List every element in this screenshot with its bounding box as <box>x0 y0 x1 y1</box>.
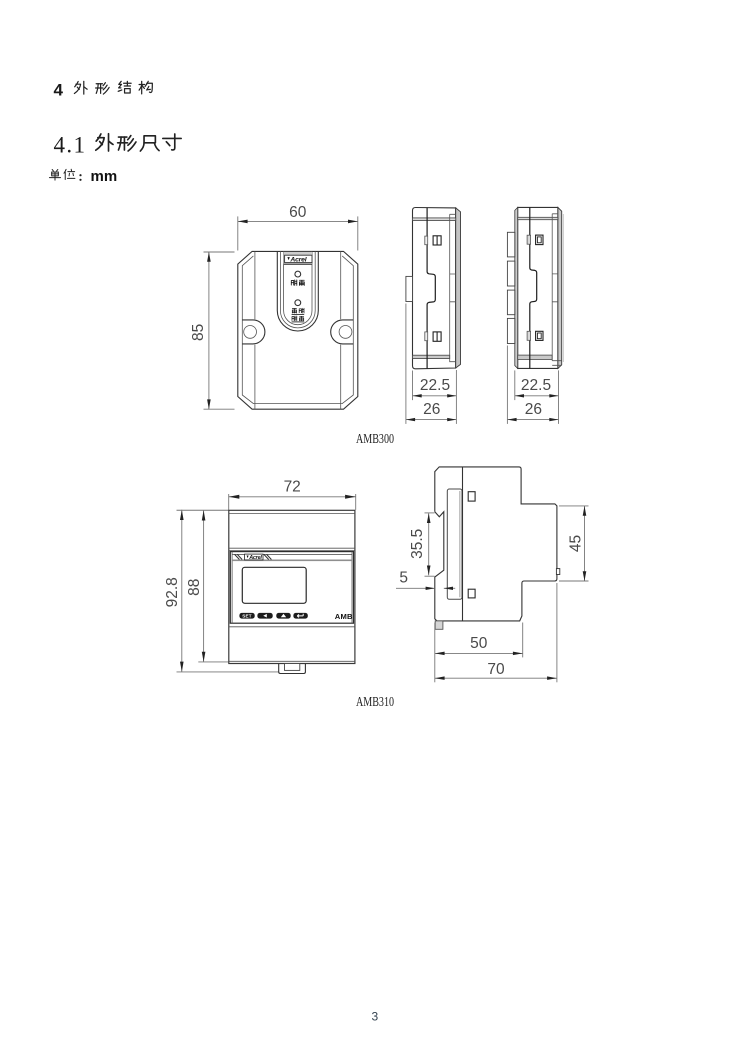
svg-text:26: 26 <box>423 401 440 418</box>
svg-text:4.1: 4.1 <box>54 132 87 157</box>
svg-text:26: 26 <box>525 401 542 418</box>
svg-text:60: 60 <box>289 204 307 221</box>
svg-text:AMB310: AMB310 <box>356 693 394 709</box>
svg-text:4: 4 <box>54 81 64 100</box>
svg-text:5: 5 <box>399 570 408 587</box>
svg-text:22.5: 22.5 <box>420 377 450 394</box>
svg-text:35.5: 35.5 <box>409 529 426 559</box>
svg-text:mm: mm <box>91 168 118 185</box>
svg-text:72: 72 <box>284 479 301 496</box>
svg-text:AMB300: AMB300 <box>356 431 394 447</box>
svg-text:50: 50 <box>470 635 488 652</box>
svg-text:22.5: 22.5 <box>521 377 551 394</box>
svg-text:AMB: AMB <box>335 612 353 621</box>
svg-text:3: 3 <box>372 1010 379 1024</box>
svg-text:45: 45 <box>567 535 584 552</box>
svg-text:Acrel: Acrel <box>248 555 262 561</box>
svg-text:92.8: 92.8 <box>164 577 181 607</box>
svg-text:SET: SET <box>242 614 252 619</box>
svg-text:88: 88 <box>186 579 203 596</box>
svg-text:85: 85 <box>190 324 207 341</box>
svg-text:70: 70 <box>487 661 505 678</box>
svg-text:Acrel: Acrel <box>289 256 306 263</box>
